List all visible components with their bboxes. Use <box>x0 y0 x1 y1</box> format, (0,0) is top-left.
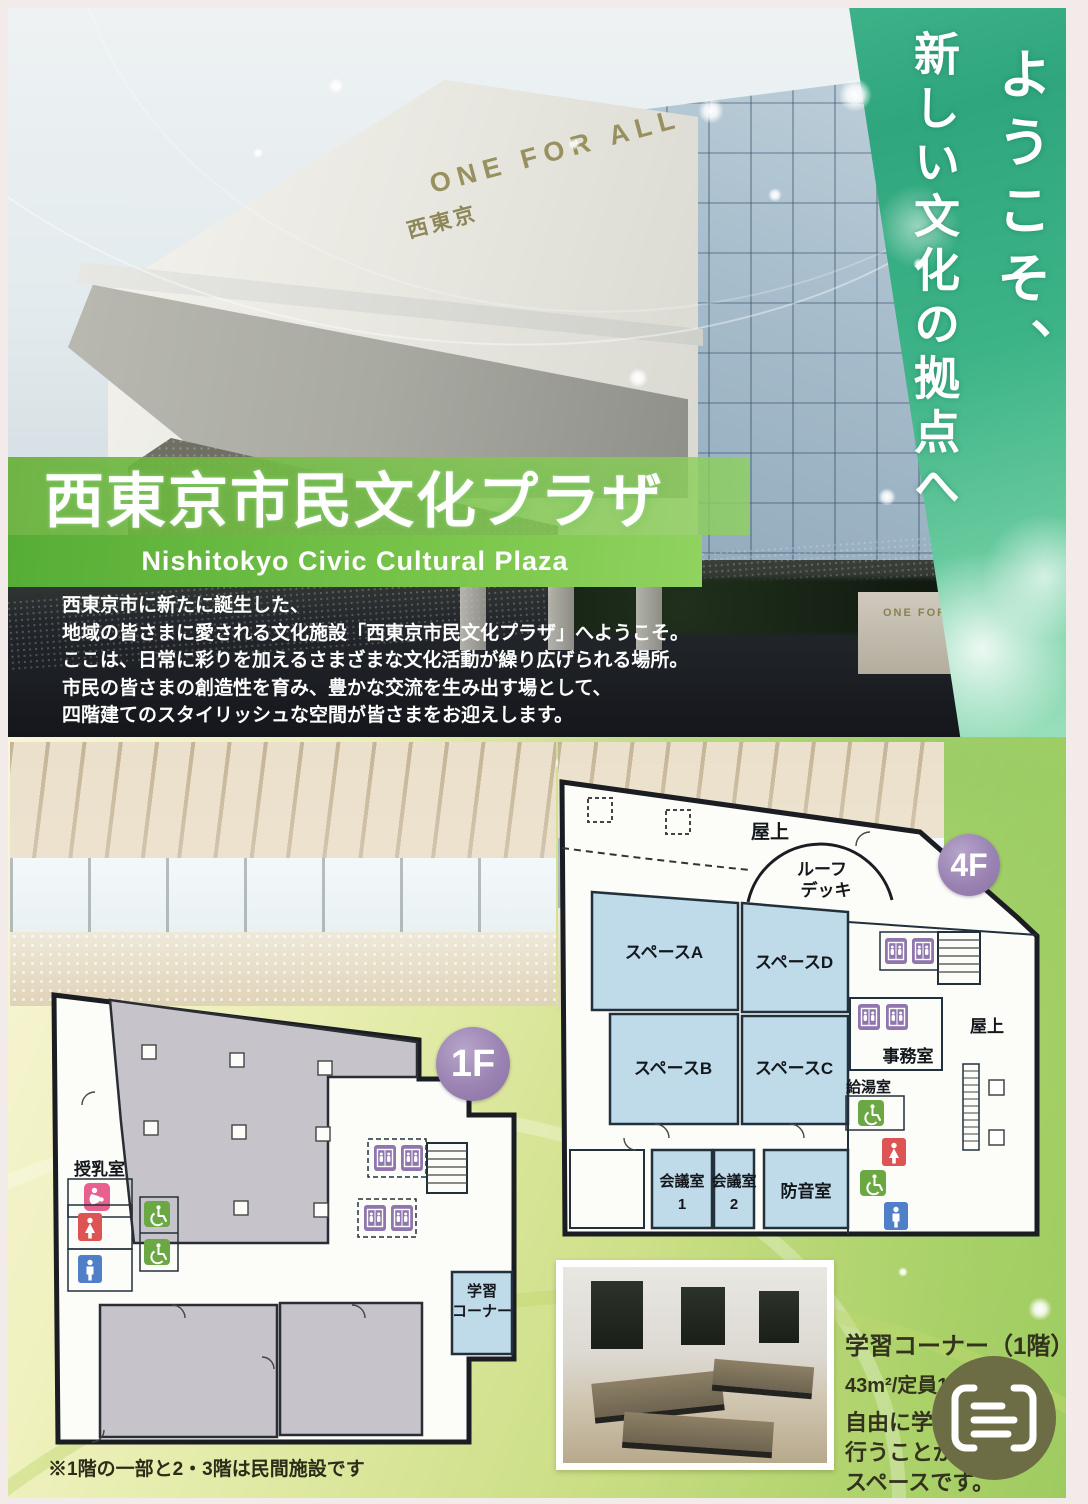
male-toilet-icon <box>78 1255 102 1283</box>
accessible-toilet-icon <box>858 1100 884 1126</box>
page-title: 西東京市民文化プラザ <box>44 453 664 540</box>
sparkle <box>328 78 344 94</box>
pamphlet-page: ONE FOR ALL 西東京 ONE FOR ALL 西東京 ようこそ、 新し… <box>0 0 1088 1504</box>
sparkle <box>698 98 724 124</box>
sparkle <box>878 488 896 506</box>
4f-roofdeck-label-1: ルーフ <box>797 860 847 879</box>
elevator-icon <box>391 1205 413 1231</box>
sparkle <box>913 258 925 270</box>
female-toilet-icon <box>882 1138 906 1166</box>
accessible-toilet-icon <box>144 1201 170 1227</box>
male-toilet-icon <box>884 1202 908 1230</box>
4f-meeting1-label: 会議室 <box>659 1172 704 1190</box>
4f-space-c-label: スペースC <box>755 1059 833 1078</box>
4f-meeting2-label: 会議室 <box>711 1172 756 1190</box>
4f-rooftop-right-label: 屋上 <box>970 1017 1004 1036</box>
accessible-toilet-icon <box>144 1239 170 1265</box>
photo-windows <box>10 858 556 937</box>
floor-badge-4f: 4F <box>938 834 1000 896</box>
intro-line: 四階建てのスタイリッシュな空間が皆さまをお迎えします。 <box>62 702 689 730</box>
learning-corner-photo <box>556 1260 834 1470</box>
4f-space-d-label: スペースD <box>755 953 833 972</box>
4f-meeting1-num: 1 <box>678 1196 686 1213</box>
photo-table <box>712 1359 814 1400</box>
elevator-icon <box>885 938 907 964</box>
photo-window <box>591 1281 643 1349</box>
title-banner-en: Nishitokyo Civic Cultural Plaza <box>8 535 702 587</box>
female-toilet-icon <box>78 1213 102 1241</box>
4f-roofdeck-label-2: デッキ <box>801 880 852 900</box>
photo-window <box>759 1291 799 1343</box>
elevator-icon <box>401 1145 423 1171</box>
photo-ceiling <box>10 742 556 858</box>
1f-learning-label-2: コーナー <box>452 1303 512 1320</box>
1f-learning-label-1: 学習 <box>467 1282 497 1300</box>
welcome-vertical-text-2: 新しい文化の拠点へ <box>900 30 966 730</box>
4f-office-label: 事務室 <box>883 1046 934 1066</box>
footnote: ※1階の一部と2・3階は民間施設です <box>48 1454 365 1481</box>
sparkle <box>568 138 580 150</box>
column-marker <box>989 1130 1004 1145</box>
intro-line: 市民の皆さまの創造性を育み、豊かな交流を生み出す場として、 <box>62 675 689 703</box>
sparkle <box>838 78 872 112</box>
column-marker <box>989 1080 1004 1095</box>
sparkle <box>1028 1297 1052 1321</box>
floor-badge-1f: 1F <box>436 1027 510 1101</box>
intro-line: 西東京市に新たに誕生した、 <box>62 592 689 620</box>
elevator-icon <box>858 1004 880 1030</box>
column-marker <box>230 1053 244 1067</box>
sparkle <box>898 1267 908 1277</box>
4f-kitchen-label: 給湯室 <box>846 1078 891 1096</box>
4f-meeting2-num: 2 <box>730 1196 738 1213</box>
accessible-toilet-icon <box>860 1170 886 1196</box>
text-scan-button[interactable] <box>929 1353 1059 1483</box>
4f-space-b-label: スペースB <box>634 1059 712 1078</box>
column-marker <box>314 1203 328 1217</box>
column-marker <box>316 1127 330 1141</box>
4f-soundproof-label: 防音室 <box>781 1181 832 1201</box>
1f-nursing-label: 授乳室 <box>74 1159 125 1179</box>
learning-corner-photo-inner <box>563 1267 827 1463</box>
intro-line: 地域の皆さまに愛される文化施設「西東京市民文化プラザ」へようこそ。 <box>62 620 689 648</box>
photo-table <box>622 1412 774 1458</box>
sparkle <box>768 188 782 202</box>
column-marker <box>232 1125 246 1139</box>
interior-photo-hall <box>10 742 556 1006</box>
column-marker <box>144 1121 158 1135</box>
column-marker <box>234 1201 248 1215</box>
welcome-vertical-text: ようこそ、 <box>980 46 1059 686</box>
4f-rooftop-label: 屋上 <box>751 821 789 843</box>
sparkle <box>628 368 648 388</box>
intro-line: ここは、日常に彩りを加えるさまざまな文化活動が繰り広げられる場所。 <box>62 647 689 675</box>
intro-paragraph: 西東京市に新たに誕生した、 地域の皆さまに愛される文化施設「西東京市民文化プラザ… <box>62 592 689 730</box>
title-banner: 西東京市民文化プラザ <box>8 457 750 535</box>
photo-window <box>681 1287 725 1345</box>
sparkle <box>253 148 263 158</box>
column-marker <box>142 1045 156 1059</box>
elevator-icon <box>364 1205 386 1231</box>
4f-space-a-label: スペースA <box>625 943 703 962</box>
elevator-icon <box>374 1145 396 1171</box>
column-marker <box>318 1061 332 1075</box>
1f-private-room <box>280 1303 422 1435</box>
nursing-room-icon <box>84 1183 110 1211</box>
elevator-icon <box>912 938 934 964</box>
elevator-icon <box>886 1004 908 1030</box>
1f-private-room <box>100 1305 277 1437</box>
